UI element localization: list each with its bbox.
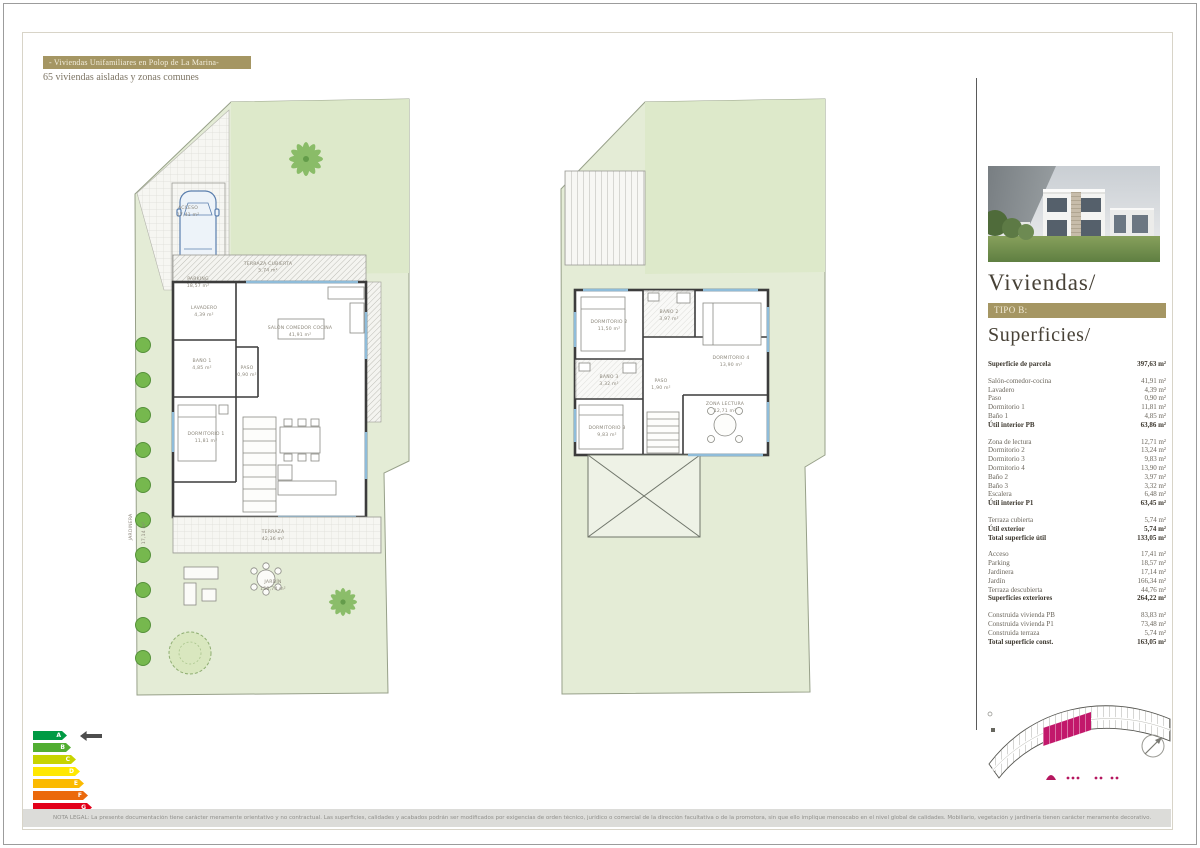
surface-row: Baño 23,97 m² [988, 473, 1166, 482]
disclaimer-text: NOTA LEGAL: La presente documentación ti… [23, 815, 1151, 821]
room-area: 3,32 m² [599, 381, 618, 387]
surface-row: Construida vivienda PB83,83 m² [988, 611, 1166, 620]
room-area: 1,90 m² [651, 385, 670, 391]
room-area: 11,81 m² [195, 438, 218, 444]
room-label: LAVADERO [191, 305, 218, 311]
room-area: 18,57 m² [187, 283, 210, 289]
room-area: 0,90 m² [237, 372, 256, 378]
room-label: DORMITORIO 1 [187, 431, 224, 437]
surface-row: Dormitorio 111,81 m² [988, 403, 1166, 412]
surface-group: Terraza cubierta5,74 m² Útil exterior5,7… [988, 516, 1166, 542]
surface-row: Lavadero4,39 m² [988, 386, 1166, 395]
legend-dot [988, 712, 992, 716]
energy-bar-c: C [33, 755, 76, 764]
surface-group: Construida vivienda PB83,83 m² Construid… [988, 611, 1166, 646]
room-label: DORMITORIO 4 [712, 355, 749, 361]
pergola-slats [565, 171, 645, 265]
room-label: JARDINERA [128, 513, 134, 541]
project-subtitle: 65 viviendas aisladas y zonas comunes [43, 72, 199, 83]
surface-row: Útil interior PB63,86 m² [988, 421, 1166, 430]
surface-row: Total superficie útil133,05 m² [988, 534, 1166, 543]
surface-row: Superficie de parcela397,63 m² [988, 360, 1166, 369]
surface-row: Dormitorio 39,83 m² [988, 455, 1166, 464]
legend-mark [991, 728, 995, 732]
room-label: DORMITORIO 2 [590, 319, 627, 325]
surface-row: Dormitorio 213,24 m² [988, 446, 1166, 455]
surface-group: Zona de lectura12,71 m² Dormitorio 213,2… [988, 438, 1166, 508]
surface-row: Útil interior P163,45 m² [988, 499, 1166, 508]
floor-plan-ground: TERRAZA CUBIERTA 5,74 m² LAVADERO 4,39 m… [128, 97, 418, 697]
surface-row: Total superficie const.163,05 m² [988, 638, 1166, 647]
bed-icon [703, 303, 761, 345]
room-label: TERRAZA [261, 529, 285, 535]
room-label: JARDÍN [263, 578, 281, 585]
surface-row: Dormitorio 413,90 m² [988, 464, 1166, 473]
stone-column [1071, 192, 1081, 240]
surface-row: Baño 14,85 m² [988, 412, 1166, 421]
room-area: 13,90 m² [720, 362, 743, 368]
surface-row: Zona de lectura12,71 m² [988, 438, 1166, 447]
room-label: ACCESO [178, 205, 198, 211]
energy-rating-label: A B C D E F G [33, 731, 153, 815]
energy-bar-d: D [33, 767, 80, 776]
surface-row: Terraza descubierta44,76 m² [988, 586, 1166, 595]
surface-row: Útil exterior5,74 m² [988, 525, 1166, 534]
room-area: 4,85 m² [192, 365, 211, 371]
upper-garden [645, 99, 825, 274]
room-area: 17,41 m² [177, 212, 200, 218]
room-area: 12,71 m² [714, 408, 737, 414]
energy-pointer-icon [80, 731, 102, 741]
villa-photo [988, 166, 1160, 262]
project-title-bar: - Viviendas Unifamiliares en Polop de La… [43, 56, 251, 69]
room-area: 3,97 m² [659, 316, 678, 322]
energy-bar-e: E [33, 779, 84, 788]
legal-footer: NOTA LEGAL: La presente documentación ti… [23, 809, 1171, 827]
room-area: 150,74 m² [260, 586, 286, 592]
surface-row: Salón-comedor-cocina41,91 m² [988, 377, 1166, 386]
floor-plan-first: DORMITORIO 2 11,50 m² BAÑO 2 3,97 m² DOR… [553, 97, 843, 697]
surface-row: Baño 33,32 m² [988, 482, 1166, 491]
surface-row: Superficies exteriores264,22 m² [988, 594, 1166, 603]
surface-row: Escalera6,48 m² [988, 490, 1166, 499]
room-label: DORMITORIO 3 [588, 425, 625, 431]
surface-row: Jardín166,34 m² [988, 577, 1166, 586]
surfaces-title: Superficies/ [988, 324, 1091, 347]
surface-row: Acceso17,41 m² [988, 550, 1166, 559]
surface-row: Paso0,90 m² [988, 394, 1166, 403]
type-label-bar: TIPO B: [988, 303, 1166, 318]
room-area: 11,50 m² [598, 326, 621, 332]
room-label: BAÑO 2 [660, 308, 679, 315]
surface-group: Superficie de parcela397,63 m² [988, 360, 1166, 369]
surface-row: Parking18,57 m² [988, 559, 1166, 568]
brand-logo [1038, 762, 1168, 792]
surface-row: Construida vivienda P173,48 m² [988, 620, 1166, 629]
energy-bar-a: A [33, 731, 67, 740]
section-title: Viviendas/ [988, 270, 1096, 296]
room-area: 5,74 m² [258, 268, 277, 274]
energy-bar-b: B [33, 743, 71, 752]
lower-terrace-paving [173, 517, 381, 553]
room-label: BAÑO 3 [600, 373, 619, 380]
surface-row: Jardinera17,14 m² [988, 568, 1166, 577]
surface-group: Acceso17,41 m² Parking18,57 m² Jardinera… [988, 550, 1166, 603]
surface-row: Construida terraza5,74 m² [988, 629, 1166, 638]
room-area: 42,36 m² [262, 536, 285, 542]
surface-group: Salón-comedor-cocina41,91 m² Lavadero4,3… [988, 377, 1166, 430]
room-area: 41,91 m² [289, 332, 312, 338]
lawn [988, 236, 1160, 262]
dining-table-icon [280, 419, 320, 461]
room-label: SALÓN COMEDOR COCINA [268, 324, 333, 331]
sidebar-divider [976, 78, 977, 730]
upper-garden [231, 99, 409, 275]
brochure-page: - Viviendas Unifamiliares en Polop de La… [0, 0, 1200, 848]
round-tree-icon [169, 632, 211, 674]
room-label: PASO [655, 378, 668, 384]
room-area: 9,83 m² [597, 432, 616, 438]
stairs-icon [647, 412, 679, 453]
room-label: BAÑO 1 [193, 357, 212, 364]
room-area: 17,14 m² [141, 522, 147, 545]
room-label: PASO [241, 365, 254, 371]
room-label: TERRAZA CUBIERTA [243, 261, 293, 267]
energy-bar-f: F [33, 791, 88, 800]
north-compass-icon [1142, 735, 1164, 757]
room-label: ZONA LECTURA [706, 401, 745, 407]
room-label: PARKING [187, 276, 209, 282]
surface-row: Terraza cubierta5,74 m² [988, 516, 1166, 525]
side-walkway-hatch [366, 282, 381, 422]
room-area: 4,39 m² [194, 312, 213, 318]
void-cross [588, 455, 700, 537]
stairs-icon [243, 417, 276, 512]
surfaces-table: Superficie de parcela397,63 m² Salón-com… [988, 360, 1166, 654]
